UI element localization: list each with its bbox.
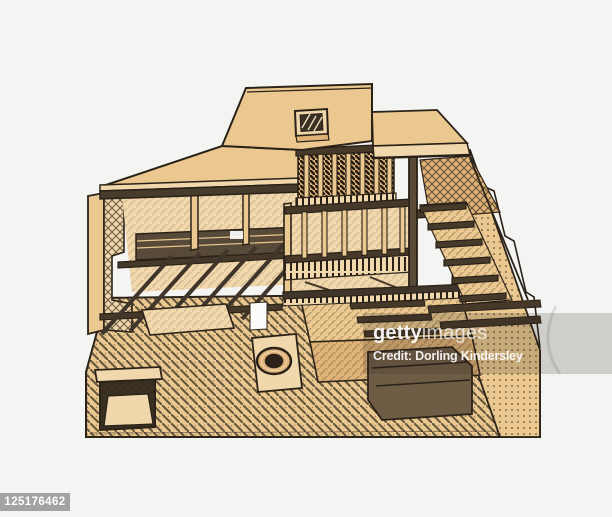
left-interior (122, 186, 300, 292)
drain-pipe-ring (252, 334, 302, 392)
house-cross-section-illustration (0, 0, 612, 517)
right-roof (372, 110, 470, 158)
stock-image-canvas: gettyimages Credit: Dorling Kindersley 1… (0, 0, 612, 517)
left-roof (100, 146, 302, 199)
upper-storey-block (222, 84, 372, 150)
image-id-badge: 125176462 (0, 493, 70, 511)
foundation-niche (95, 367, 162, 430)
watermark-swash-ghost (548, 306, 560, 374)
